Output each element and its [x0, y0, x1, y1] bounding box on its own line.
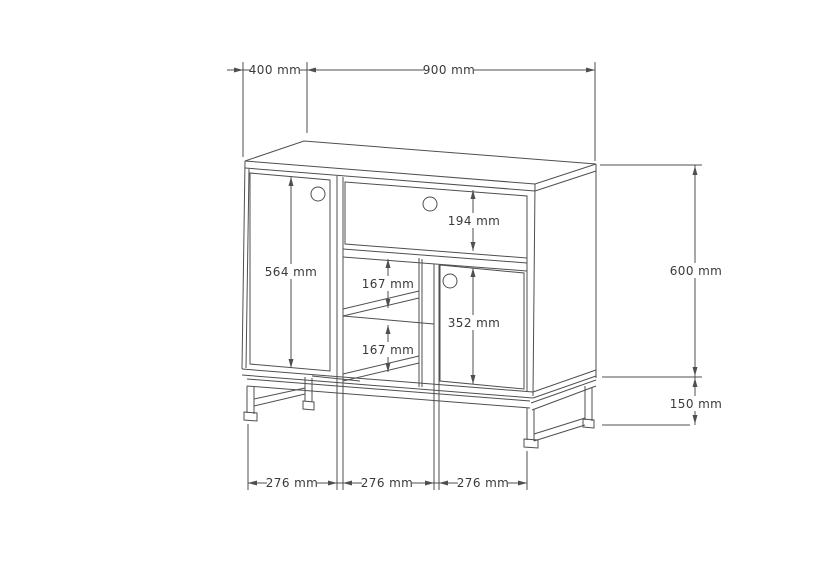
back-left-foot — [303, 401, 314, 410]
side-rail-top — [531, 380, 596, 403]
drawer-knob-icon — [423, 197, 437, 211]
technical-drawing-page: 400 mm 900 mm 600 mm 150 mm 194 mm 564 m… — [0, 0, 820, 580]
bottom-shelf-top-diagonal — [343, 363, 419, 381]
back-right-foot — [583, 419, 594, 428]
bottom-side-edge — [533, 370, 596, 392]
bottom-side-thickness — [533, 376, 596, 398]
middle-shelf-top-diagonal — [343, 298, 419, 316]
front-right-leg — [527, 408, 534, 441]
dim-label-right-door-height: 352 mm — [448, 316, 501, 330]
left-door-knob-icon — [311, 187, 325, 201]
dim-label-leg-height: 150 mm — [670, 397, 723, 411]
rail-under-drawer-bottom — [343, 257, 527, 271]
dim-label-width: 900 mm — [423, 63, 476, 77]
dim-label-upper-shelf-gap: 167 mm — [362, 277, 415, 291]
dim-label-body-height: 600 mm — [670, 264, 723, 278]
base-frame — [244, 376, 596, 448]
sideboard-drawing: 400 mm 900 mm 600 mm 150 mm 194 mm 564 m… — [0, 0, 820, 580]
back-right-leg — [585, 386, 592, 421]
dim-label-middle-section-width: 276 mm — [361, 476, 414, 490]
front-rail-bottom — [247, 386, 530, 408]
dim-label-drawer-height: 194 mm — [448, 214, 501, 228]
side-rail-bottom — [532, 386, 596, 410]
dimension-annotations: 400 mm 900 mm 600 mm 150 mm 194 mm 564 m… — [227, 62, 722, 490]
dim-label-depth: 400 mm — [249, 63, 302, 77]
cabinet-body — [242, 141, 596, 490]
dim-label-lower-shelf-gap: 167 mm — [362, 343, 415, 357]
right-front-edge — [533, 184, 535, 396]
left-outer-edge — [242, 161, 245, 369]
left-inner-edge — [246, 169, 249, 368]
bottom-shelf-back-diagonal — [343, 356, 419, 374]
right-door-knob-icon — [443, 274, 457, 288]
dim-label-left-section-width: 276 mm — [266, 476, 319, 490]
middle-shelf-front-edge — [343, 316, 434, 324]
front-left-foot — [244, 412, 257, 421]
front-left-leg — [247, 386, 254, 414]
dim-label-right-section-width: 276 mm — [457, 476, 510, 490]
middle-shelf-back-diagonal — [343, 291, 419, 309]
dim-label-left-door-height: 564 mm — [265, 265, 318, 279]
left-stretcher — [254, 388, 305, 406]
right-stretcher — [534, 418, 585, 441]
